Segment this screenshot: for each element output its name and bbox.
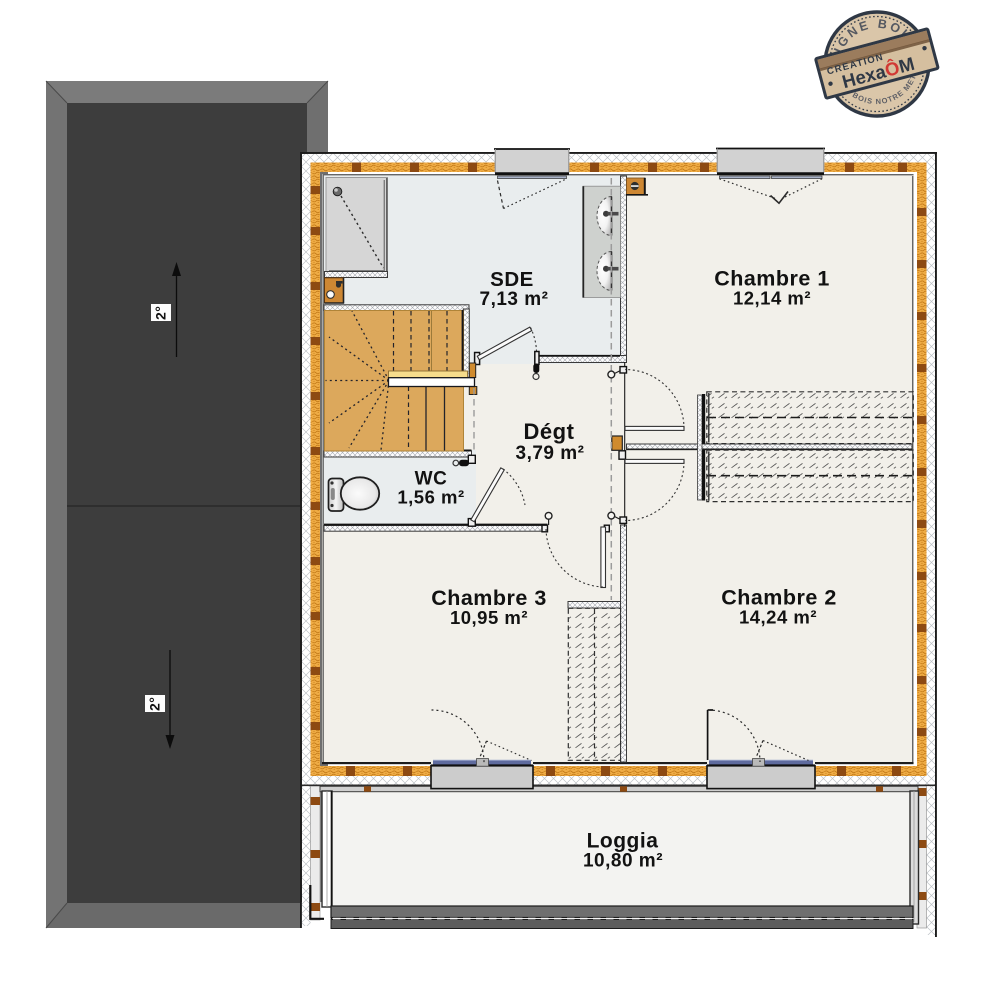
svg-text:7,13 m²: 7,13 m²	[480, 289, 549, 310]
svg-text:Loggia: Loggia	[587, 830, 659, 853]
svg-text:2°: 2°	[147, 697, 163, 711]
svg-text:10,95 m²: 10,95 m²	[450, 607, 528, 628]
svg-text:12,14 m²: 12,14 m²	[733, 288, 811, 309]
svg-text:3,79 m²: 3,79 m²	[516, 443, 585, 464]
svg-text:10,80 m²: 10,80 m²	[583, 851, 663, 872]
svg-text:Dégt: Dégt	[524, 419, 575, 444]
svg-text:1,56 m²: 1,56 m²	[397, 487, 464, 508]
svg-text:14,24 m²: 14,24 m²	[739, 607, 817, 628]
svg-text:2°: 2°	[153, 306, 169, 320]
svg-text:SDE: SDE	[490, 268, 534, 291]
